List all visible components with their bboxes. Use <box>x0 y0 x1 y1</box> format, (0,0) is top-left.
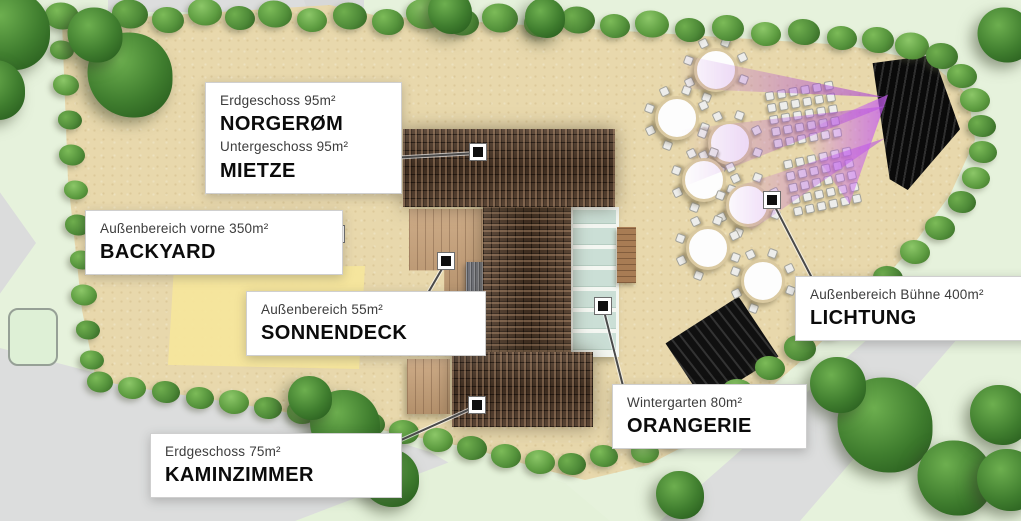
callout-subtitle: Außenbereich vorne 350m² <box>100 219 328 239</box>
callout-marker-sonnendeck[interactable] <box>438 253 454 269</box>
hedge-bush <box>297 8 327 32</box>
callout-subtitle: Wintergarten 80m² <box>627 393 792 413</box>
hedge-bush <box>457 436 487 460</box>
chair <box>816 201 827 212</box>
hedge-bush <box>947 64 977 88</box>
building-roof-top-wing <box>403 129 615 207</box>
hedge-bush <box>53 75 79 96</box>
road-left <box>0 188 36 298</box>
round-table <box>741 259 785 303</box>
tree <box>288 376 332 420</box>
callout-title: MIETZE <box>220 158 387 184</box>
wintergarten-glass-roof <box>570 207 619 357</box>
hedge-bush <box>333 3 367 30</box>
callout-sonnendeck[interactable]: Außenbereich 55m²SONNENDECK <box>246 291 486 356</box>
callout-marker-orangerie[interactable] <box>595 298 611 314</box>
building-roof-bottom-wing <box>452 352 593 427</box>
callout-title: BACKYARD <box>100 239 328 265</box>
chair <box>790 99 800 109</box>
hedge-bush <box>788 19 820 45</box>
hedge-bush <box>58 111 82 130</box>
hedge-bush <box>635 11 669 38</box>
callout-subtitle: Untergeschoss 95m² <box>220 137 387 157</box>
chair <box>814 189 825 200</box>
hedge-bush <box>862 27 894 53</box>
callout-subtitle: Erdgeschoss 75m² <box>165 442 387 462</box>
hedge-bush <box>76 321 100 340</box>
hedge-bush <box>600 14 630 38</box>
hedge-bush <box>372 9 404 35</box>
callout-kaminzimmer[interactable]: Erdgeschoss 75m²KAMINZIMMER <box>150 433 402 498</box>
chair <box>828 198 839 209</box>
round-table <box>686 226 730 270</box>
chair <box>767 103 777 113</box>
hedge-bush <box>80 351 104 370</box>
hedge-bush <box>925 216 955 240</box>
chair <box>826 187 837 198</box>
hedge-bush <box>969 141 997 163</box>
hedge-bush <box>827 26 857 50</box>
hedge-bush <box>962 167 990 189</box>
callout-norgerom-mietze[interactable]: Erdgeschoss 95m²NORGERØMUntergeschoss 95… <box>205 82 402 194</box>
hedge-bush <box>491 444 521 468</box>
hedge-bush <box>895 33 929 60</box>
callout-title: ORANGERIE <box>627 413 792 439</box>
callout-subtitle: Außenbereich Bühne 400m² <box>810 285 1016 305</box>
hedge-bush <box>751 22 781 46</box>
hedge-bush <box>423 428 453 452</box>
chair <box>805 203 816 214</box>
hedge-bush <box>561 7 595 34</box>
chair <box>814 94 824 104</box>
hedge-bush <box>900 240 930 264</box>
tree <box>970 385 1021 445</box>
hedge-bush <box>712 15 744 41</box>
hedge-bush <box>258 1 292 28</box>
tree <box>810 357 866 413</box>
callout-subtitle: Außenbereich 55m² <box>261 300 471 320</box>
tree <box>656 471 704 519</box>
tree <box>525 0 565 38</box>
hedge-bush <box>118 377 146 399</box>
hedge-bush <box>219 390 249 414</box>
callout-title: KAMINZIMMER <box>165 462 387 488</box>
venue-site-plan: Erdgeschoss 95m²NORGERØMUntergeschoss 95… <box>0 0 1021 521</box>
chair <box>793 206 804 217</box>
callout-marker-norgerom-mietze[interactable] <box>470 144 486 160</box>
hedge-bush <box>968 115 996 137</box>
side-terrace <box>617 227 636 283</box>
tree <box>0 0 50 70</box>
hedge-bush <box>525 450 555 474</box>
hedge-bush <box>482 4 518 33</box>
hedge-bush <box>71 285 97 306</box>
chair <box>851 193 862 204</box>
hedge-bush <box>188 0 222 26</box>
callout-backyard[interactable]: Außenbereich vorne 350m²BACKYARD <box>85 210 343 275</box>
tree <box>68 8 123 63</box>
chair <box>778 101 788 111</box>
chair <box>765 91 775 101</box>
hedge-bush <box>87 372 113 393</box>
lower-deck <box>407 359 450 414</box>
callout-lichtung[interactable]: Außenbereich Bühne 400m²LICHTUNG <box>795 276 1021 341</box>
callout-marker-lichtung[interactable] <box>764 192 780 208</box>
hedge-bush <box>558 453 586 475</box>
hedge-bush <box>186 387 214 409</box>
hedge-bush <box>254 397 282 419</box>
hedge-bush <box>64 181 88 200</box>
grass-patch <box>8 308 58 366</box>
hedge-bush <box>948 191 976 213</box>
hedge-bush <box>675 18 705 42</box>
callout-marker-kaminzimmer[interactable] <box>469 397 485 413</box>
hedge-bush <box>152 7 184 33</box>
tree <box>978 8 1021 63</box>
chair <box>783 159 794 170</box>
callout-title: NORGERØM <box>220 111 387 137</box>
callout-orangerie[interactable]: Wintergarten 80m²ORANGERIE <box>612 384 807 449</box>
hedge-bush <box>59 145 85 166</box>
callout-title: LICHTUNG <box>810 305 1016 331</box>
hedge-bush <box>960 88 990 112</box>
callout-title: SONNENDECK <box>261 320 471 346</box>
chair <box>802 96 812 106</box>
callout-subtitle: Erdgeschoss 95m² <box>220 91 387 111</box>
hedge-bush <box>225 6 255 30</box>
hedge-bush <box>152 381 180 403</box>
hedge-bush <box>755 356 785 380</box>
